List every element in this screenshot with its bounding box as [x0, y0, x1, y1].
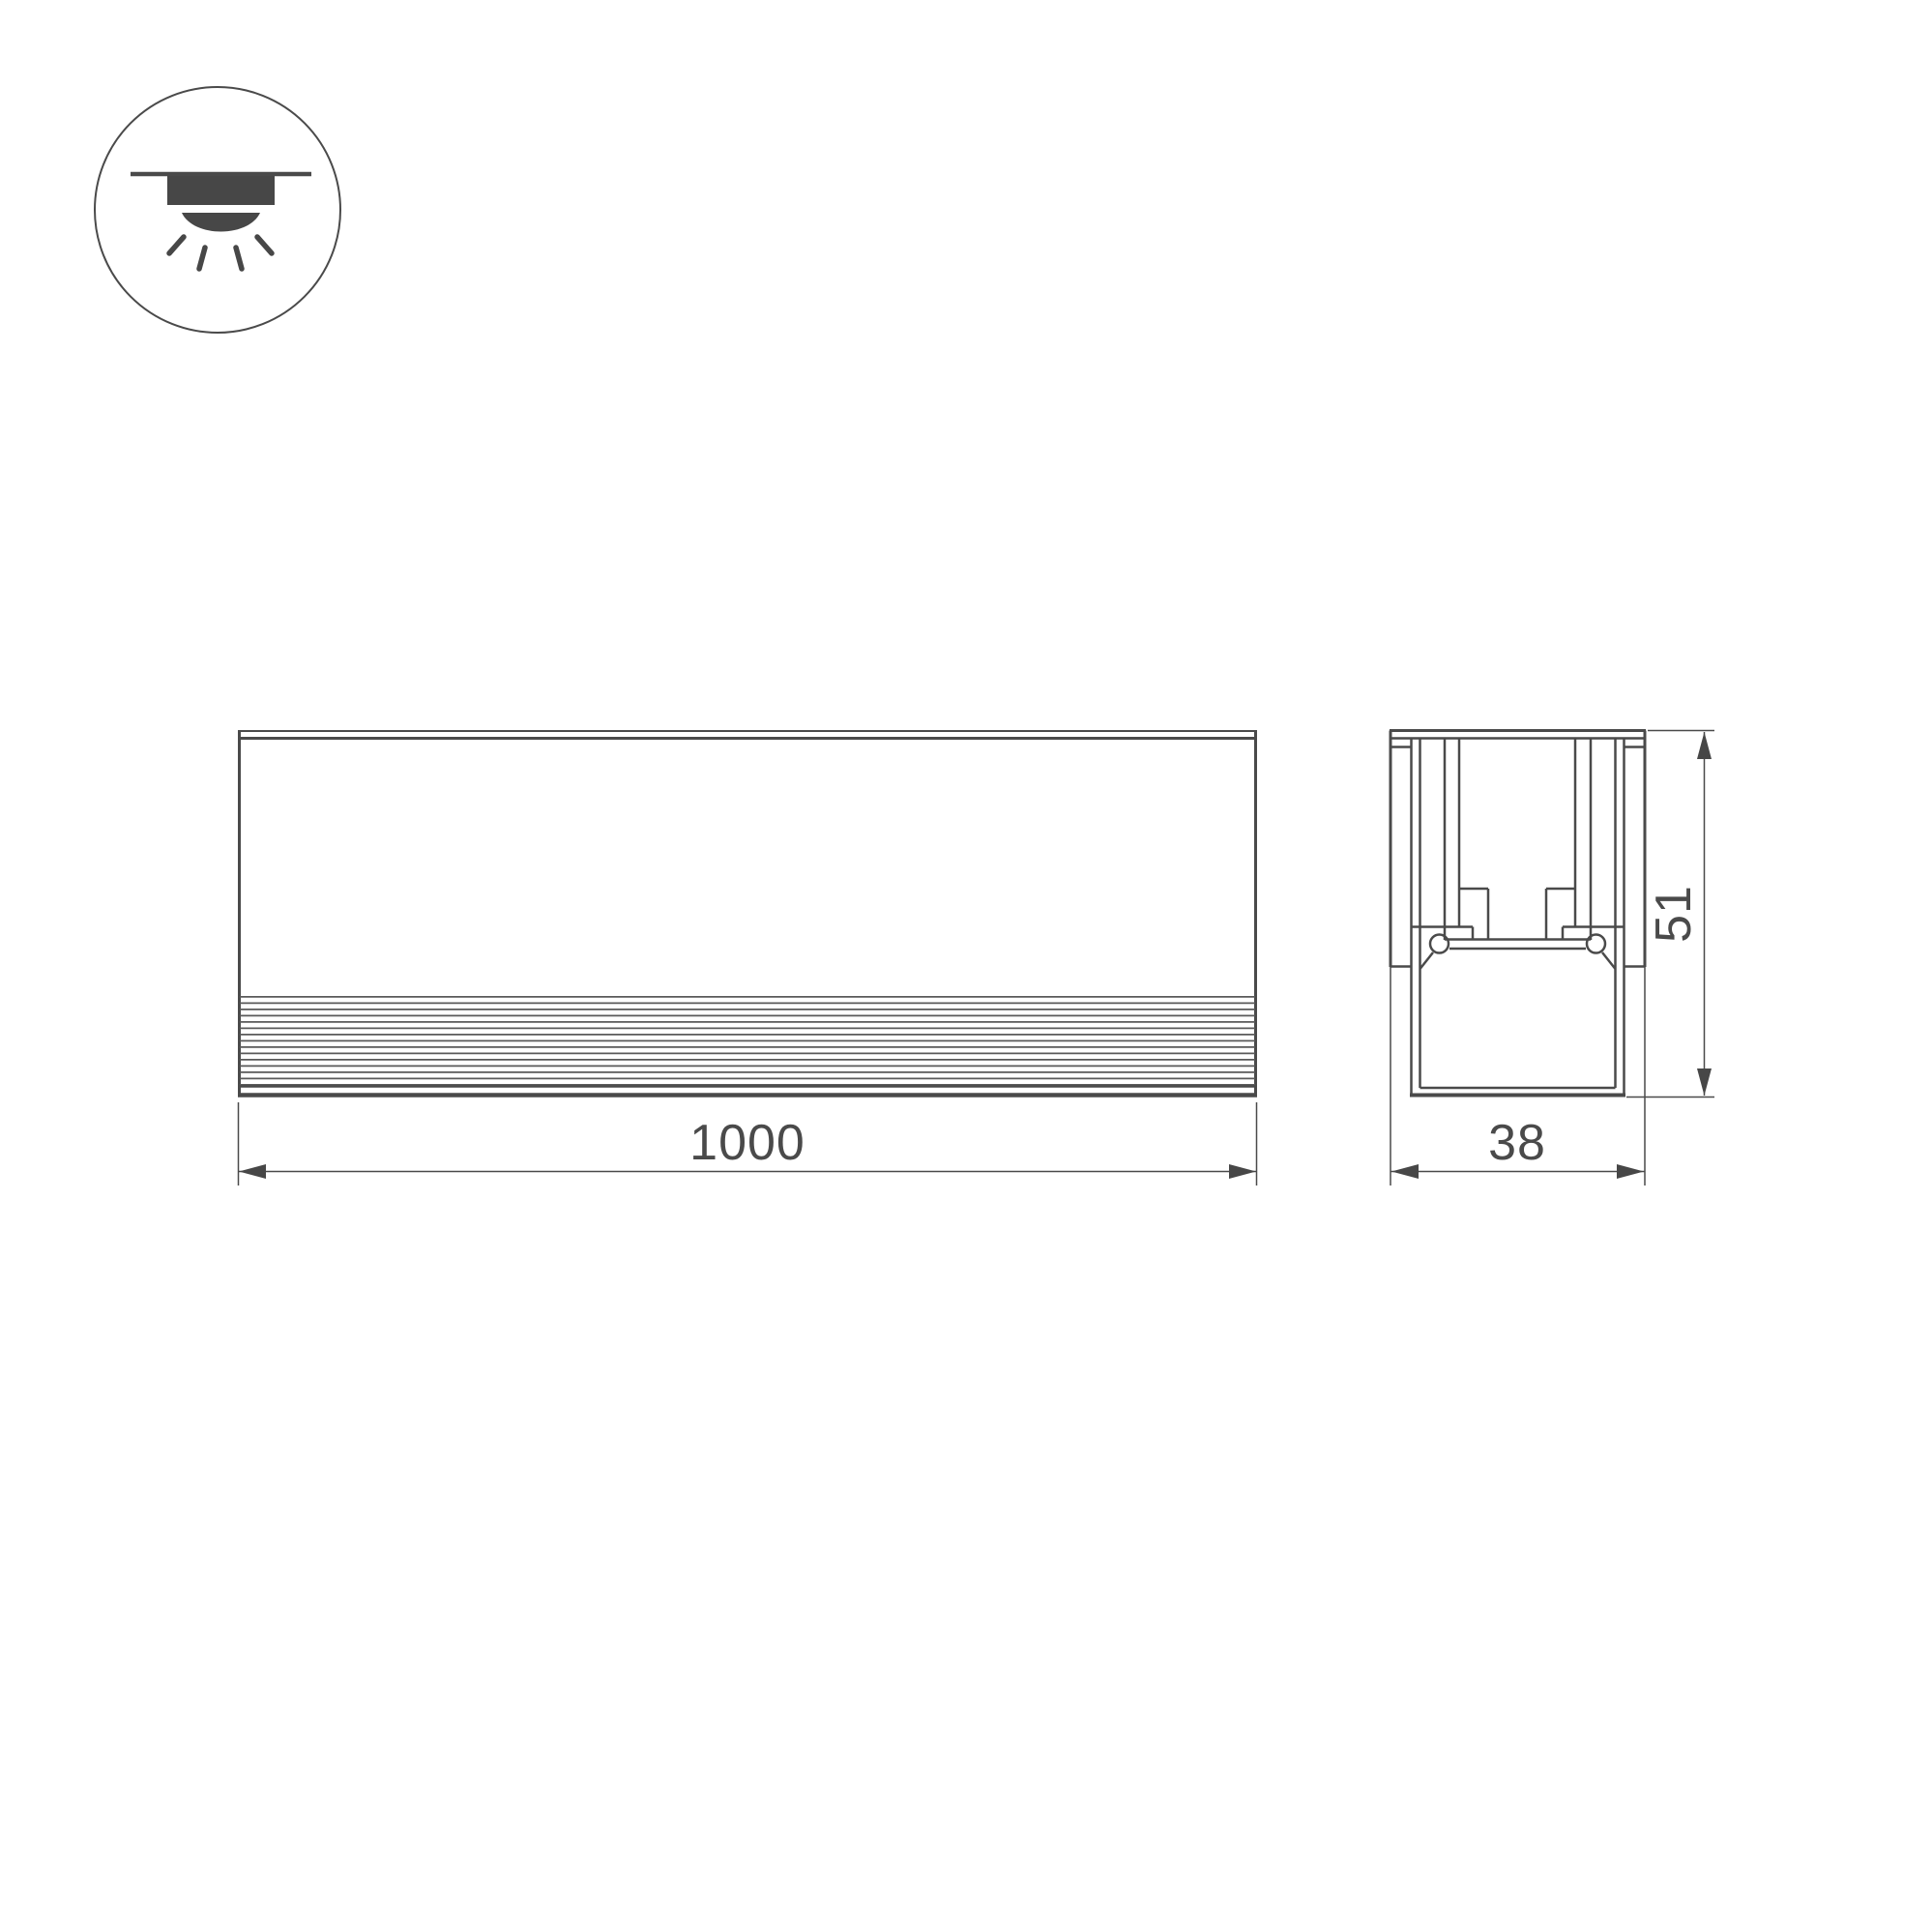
technical-drawing-canvas: 1000 38 51 [0, 0, 1932, 1932]
technical-drawing-page: 1000 38 51 [0, 0, 1932, 1932]
section-inner-structure [1390, 739, 1646, 1095]
section-screw-port-left [1430, 935, 1449, 953]
icon-circle-border [95, 87, 340, 333]
icon-fixture-body [167, 176, 275, 205]
section-screw-port-right [1587, 935, 1605, 953]
dimension-length: 1000 [238, 1102, 1257, 1186]
dimension-width-label: 38 [1488, 1115, 1546, 1171]
section-outer-walls [1390, 731, 1646, 968]
recessed-ceiling-light-icon [95, 87, 340, 333]
front-view-drawing [238, 730, 1257, 1096]
dimension-length-label: 1000 [689, 1115, 805, 1171]
icon-light-dome [182, 213, 260, 232]
dimension-height: 51 [1626, 731, 1714, 1098]
front-view-ribbed-band [240, 995, 1255, 1087]
icon-light-rays [169, 237, 272, 269]
section-view-drawing [1390, 731, 1646, 1096]
dimension-width: 38 [1390, 967, 1645, 1186]
dimension-height-label: 51 [1646, 885, 1702, 943]
